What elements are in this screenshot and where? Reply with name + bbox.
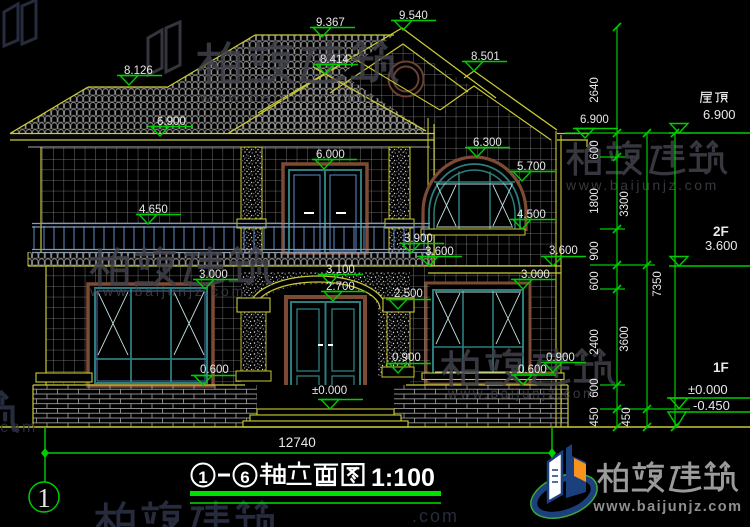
svg-text:600: 600 — [589, 271, 601, 290]
svg-text:1F: 1F — [713, 360, 729, 375]
svg-text:4.650: 4.650 — [139, 204, 168, 216]
svg-text:3.100: 3.100 — [326, 264, 355, 276]
svg-text:2.700: 2.700 — [326, 281, 355, 293]
svg-text:8.414: 8.414 — [320, 54, 349, 66]
svg-text:3300: 3300 — [619, 191, 631, 217]
svg-text:3.600: 3.600 — [549, 245, 578, 257]
svg-text:8.126: 8.126 — [124, 65, 153, 77]
svg-text:3.000: 3.000 — [521, 269, 550, 281]
svg-text:3.600: 3.600 — [705, 238, 738, 253]
svg-text:600: 600 — [589, 140, 601, 159]
svg-text:3.900: 3.900 — [404, 233, 433, 245]
svg-text:6.300: 6.300 — [473, 137, 502, 149]
svg-text:1: 1 — [198, 468, 207, 487]
svg-text:1800: 1800 — [589, 188, 601, 214]
svg-text:0.900: 0.900 — [392, 352, 421, 364]
svg-text:2400: 2400 — [589, 329, 601, 355]
svg-text:4.500: 4.500 — [517, 209, 546, 221]
svg-text:3.600: 3.600 — [425, 246, 454, 258]
svg-text:450: 450 — [589, 407, 601, 426]
svg-text:12740: 12740 — [278, 435, 316, 450]
svg-text:1: 1 — [37, 483, 51, 513]
svg-text:1:100: 1:100 — [371, 464, 435, 492]
svg-text:600: 600 — [589, 378, 601, 397]
svg-text:450: 450 — [621, 407, 633, 426]
svg-text:.com: .com — [412, 506, 459, 526]
svg-text:0.600: 0.600 — [518, 364, 547, 376]
svg-text:www.baijunjz.com: www.baijunjz.com — [199, 89, 375, 106]
svg-text:9.367: 9.367 — [316, 17, 345, 29]
svg-text:www.baijunjz.com: www.baijunjz.com — [447, 386, 597, 401]
svg-text:6: 6 — [240, 468, 249, 487]
svg-text:6.900: 6.900 — [580, 114, 609, 126]
svg-text:6.900: 6.900 — [703, 107, 736, 122]
svg-text:3600: 3600 — [619, 326, 631, 352]
svg-text:±0.000: ±0.000 — [688, 382, 728, 397]
svg-text:-0.450: -0.450 — [693, 398, 730, 413]
svg-text:5.700: 5.700 — [517, 161, 546, 173]
svg-text:www.baijunjz.com: www.baijunjz.com — [592, 499, 742, 515]
svg-text:2640: 2640 — [589, 77, 601, 103]
svg-text:2.500: 2.500 — [394, 288, 423, 300]
svg-text:±0.000: ±0.000 — [312, 385, 347, 397]
svg-text:6.000: 6.000 — [316, 149, 345, 161]
svg-text:8.501: 8.501 — [471, 51, 500, 63]
svg-text:3.000: 3.000 — [199, 269, 228, 281]
svg-text:w.com: w.com — [0, 419, 38, 436]
svg-text:9.540: 9.540 — [399, 10, 428, 22]
svg-text:900: 900 — [589, 241, 601, 260]
svg-text:0.900: 0.900 — [546, 352, 575, 364]
svg-text:6.900: 6.900 — [157, 116, 186, 128]
svg-text:0.600: 0.600 — [200, 364, 229, 376]
svg-text:7350: 7350 — [652, 271, 664, 297]
svg-text:2F: 2F — [713, 224, 729, 239]
svg-text:www.baijunjz.com: www.baijunjz.com — [89, 283, 246, 299]
